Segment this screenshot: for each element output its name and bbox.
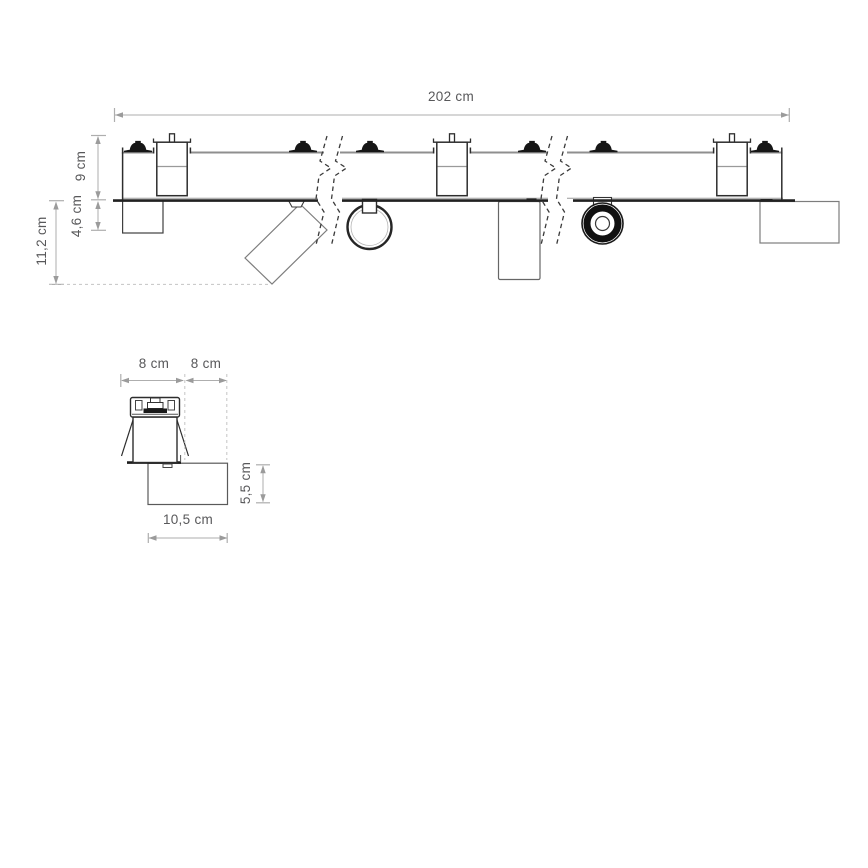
label-spot-depth: 4,6 cm — [69, 186, 85, 246]
spotlight-box-tall — [499, 199, 541, 280]
dim-detail-side-offset — [185, 374, 227, 460]
dim-spot-depth — [91, 201, 106, 230]
mounting-adapter-1 — [154, 134, 191, 196]
label-total-length: 202 cm — [391, 89, 511, 105]
spotlight-wide-box — [760, 199, 839, 243]
mounting-adapter-3 — [714, 134, 751, 196]
dim-detail-box-height — [256, 465, 270, 503]
spotlight-cylinder-side — [348, 200, 392, 250]
detail-attached-box — [148, 463, 228, 504]
label-detail-box-width: 10,5 cm — [148, 512, 228, 528]
dim-track-height — [91, 136, 106, 200]
dim-detail-track-width — [121, 374, 184, 387]
spotlight-box-left — [123, 201, 163, 234]
spotlight-lens-front — [582, 198, 623, 245]
diagram-page: 202 cm 9 cm 4,6 cm 11,2 cm 8 cm 8 cm 5,5… — [0, 0, 868, 868]
dim-detail-box-width — [148, 533, 227, 543]
label-max-depth: 11,2 cm — [34, 201, 50, 281]
mounting-adapter-2 — [434, 134, 471, 196]
detail-track-cross-section — [122, 398, 189, 468]
dim-total-length — [115, 108, 790, 122]
technical-drawing-canvas — [0, 0, 868, 868]
spotlight-angled — [245, 201, 327, 285]
label-detail-box-height: 5,5 cm — [238, 453, 254, 513]
label-detail-side-offset: 8 cm — [174, 356, 238, 372]
